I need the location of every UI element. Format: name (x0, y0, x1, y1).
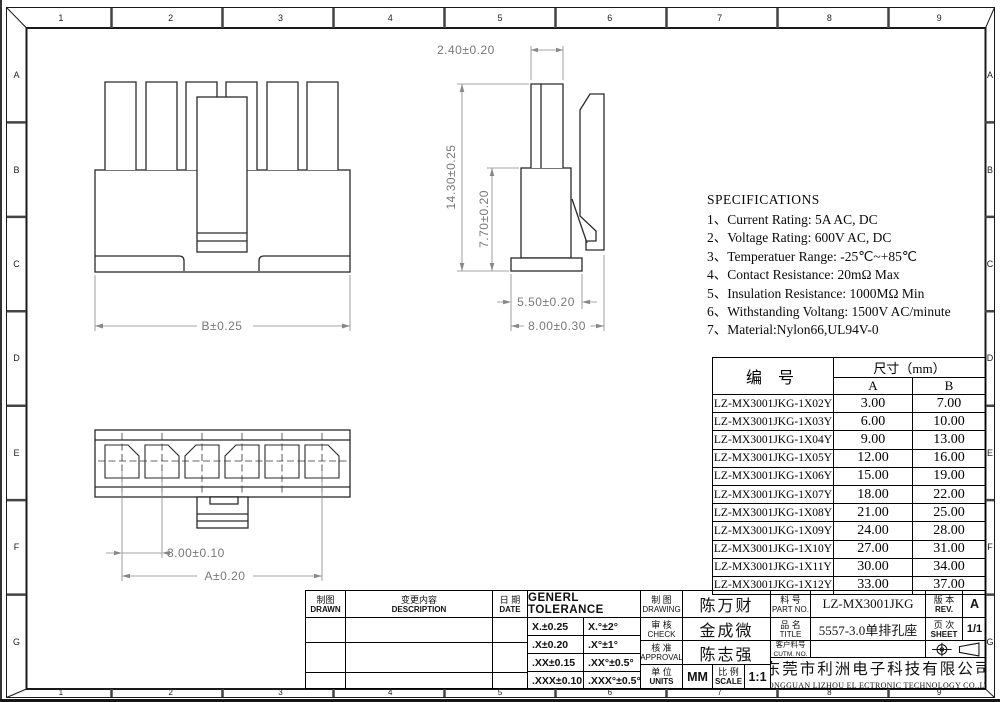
projection-symbol-cell (926, 641, 986, 658)
dim-side-body-height: 7.70±0.20 (477, 190, 491, 248)
title-label-cn: 品 名 (780, 620, 801, 630)
part-number: LZ-MX3001JKG-1X02Y (713, 395, 834, 413)
frame-column-label: 4 (335, 8, 445, 28)
parts-table: 编 号 尺寸（mm） A B LZ-MX3001JKG-1X02Y 3.00 7… (712, 357, 986, 595)
revision-row-cell (493, 673, 528, 689)
dim-b-value: 10.00 (913, 413, 986, 431)
dim-b-value: 34.00 (913, 558, 986, 576)
dim-b-value: 16.00 (913, 449, 986, 467)
parts-table-header-part: 编 号 (713, 358, 834, 395)
scale-label-cn: 比 例 (718, 667, 739, 677)
title-value-cell: 5557-3.0单排孔座 (811, 618, 926, 641)
sheet-label-cell: 页 次 SHEET (926, 618, 963, 641)
sheet-value: 1/1 (967, 623, 982, 635)
check-label-cn: 审 核 (651, 620, 672, 630)
customer-no-value-cell (811, 641, 926, 658)
dim-a-value: 24.00 (834, 522, 913, 540)
check-label-en: CHECK (647, 630, 675, 639)
rev-value: A (970, 597, 979, 611)
parts-table-row: LZ-MX3001JKG-1X05Y 12.00 16.00 (713, 449, 986, 467)
frame-column-label: 1 (6, 688, 116, 697)
specification-item: 1、Current Rating: 5A AC, DC (707, 211, 997, 229)
part-no-label-cn: 料 号 (780, 595, 801, 605)
scale-value: 1:1 (748, 670, 766, 684)
revision-row-cell (306, 673, 346, 689)
company-name-en: DONGGUAN LIZHOU EL ECTRONIC TECHNOLOGY C… (771, 681, 986, 689)
front-view-linework (95, 82, 350, 272)
specification-item: 5、Insulation Resistance: 1000MΩ Min (707, 285, 997, 303)
company-cell: 东莞市利洲电子科技有限公司 DONGGUAN LIZHOU EL ECTRONI… (771, 658, 986, 689)
dim-a-value: 6.00 (834, 413, 913, 431)
specification-item: 3、Temperatuer Range: -25℃~+85℃ (707, 248, 997, 266)
frame-column-label: 5 (445, 688, 555, 697)
scale-label-cell: 比 例 SCALE (713, 665, 745, 689)
check-label-cell: 审 核 CHECK (641, 618, 683, 641)
part-title-value: 5557-3.0单排孔座 (819, 620, 918, 639)
revision-row-cell (346, 673, 493, 689)
frame-row-label: G (985, 595, 995, 689)
third-angle-projection-icon (928, 642, 984, 657)
parts-table-header-size: 尺寸（mm） (834, 358, 986, 378)
dim-b-value: 22.00 (913, 485, 986, 503)
customer-no-label-cell: 客户料号 CUTM. NO. (771, 641, 811, 658)
part-number: LZ-MX3001JKG-1X06Y (713, 467, 834, 485)
specification-item: 2、Voltage Rating: 600V AC, DC (707, 229, 997, 247)
title-label-cell: 品 名 TITLE (771, 618, 811, 641)
part-no-value-cell: LZ-MX3001JKG (811, 591, 926, 618)
scale-label-en: SCALE (715, 677, 742, 686)
dim-b-value: 7.00 (913, 395, 986, 413)
part-no-label-cell: 料 号 PART NO. (771, 591, 811, 618)
frame-row-label: F (7, 500, 26, 594)
frame-column-label: 7 (665, 8, 775, 28)
parts-table-row: LZ-MX3001JKG-1X11Y 30.00 34.00 (713, 558, 986, 576)
frame-column-label: 6 (555, 688, 665, 697)
dim-b-value: 25.00 (913, 504, 986, 522)
check-name: 金成微 (699, 618, 753, 641)
description-label-en: DESCRIPTION (392, 605, 447, 614)
sheet-value-cell: 1/1 (963, 618, 986, 641)
sheet-label-cn: 页 次 (934, 620, 955, 630)
frame-column-label: 2 (116, 688, 226, 697)
parts-table-row: LZ-MX3001JKG-1X07Y 18.00 22.00 (713, 485, 986, 503)
specifications-title: SPECIFICATIONS (707, 192, 997, 208)
frame-column-labels-top: 123456789 (6, 8, 994, 28)
drawing-sheet: 123456789 123456789 ABCDEFG ABCDEFG B±0.… (0, 0, 1000, 702)
frame-column-label: 8 (774, 8, 884, 28)
part-number: LZ-MX3001JKG-1X04Y (713, 431, 834, 449)
customer-no-label-cn: 客户料号 (776, 641, 806, 650)
frame-column-label: 2 (116, 8, 226, 28)
customer-no-label-en: CUTM. NO. (774, 650, 808, 659)
part-number: LZ-MX3001JKG-1X10Y (713, 540, 834, 558)
approval-label-cn: 核 准 (651, 643, 672, 653)
rev-label-cn: 版 本 (934, 595, 955, 605)
frame-column-labels-bottom: 123456789 (6, 688, 994, 697)
date-header-cell: 日 期 DATE (493, 591, 528, 618)
date-label-cn: 日 期 (500, 595, 521, 605)
frame-row-label: A (985, 28, 995, 122)
check-name-cell: 金成微 (683, 618, 771, 641)
tolerance-frame-cell (528, 618, 641, 689)
dim-a-value: 12.00 (834, 449, 913, 467)
frame-row-label: B (7, 122, 26, 216)
revision-row-cell (493, 618, 528, 643)
dim-side-top-width: 2.40±0.20 (437, 43, 495, 57)
approval-name-cell: 陈志强 (683, 641, 771, 665)
dim-a-value: 3.00 (834, 395, 913, 413)
side-view-linework (511, 84, 604, 271)
scale-value-cell: 1:1 (745, 665, 771, 689)
dim-side-flange-width: 8.00±0.30 (528, 319, 586, 333)
specifications-block: SPECIFICATIONS 1、Current Rating: 5A AC, … (707, 192, 997, 340)
frame-column-label: 9 (884, 8, 994, 28)
drawn-label-cn: 制图 (316, 595, 334, 605)
approval-label-cell: 核 准 APPROVAL (641, 641, 683, 665)
drawing-label-en: DRAWING (642, 605, 680, 614)
parts-table-row: LZ-MX3001JKG-1X09Y 24.00 28.00 (713, 522, 986, 540)
description-header-cell: 变更内容 DESCRIPTION (346, 591, 493, 618)
parts-table-row: LZ-MX3001JKG-1X06Y 15.00 19.00 (713, 467, 986, 485)
part-number: LZ-MX3001JKG-1X07Y (713, 485, 834, 503)
rev-label-cell: 版 本 REV. (926, 591, 963, 618)
rev-value-cell: A (963, 591, 986, 618)
parts-table-row: LZ-MX3001JKG-1X04Y 9.00 13.00 (713, 431, 986, 449)
part-number: LZ-MX3001JKG-1X05Y (713, 449, 834, 467)
drawing-label-cell: 制 图 DRAWING (641, 591, 683, 618)
units-label-cell: 单 位 UNITS (641, 665, 683, 689)
drawing-name-cell: 陈万财 (683, 591, 771, 618)
drawn-header-cell: 制图 DRAWN (306, 591, 346, 618)
frame-row-label: G (7, 595, 26, 689)
frame-column-label: 5 (445, 8, 555, 28)
specification-item: 4、Contact Resistance: 20mΩ Max (707, 266, 997, 284)
dim-a-value: 21.00 (834, 504, 913, 522)
part-no-value: LZ-MX3001JKG (823, 596, 914, 612)
title-block: 制图 DRAWN 变更内容 DESCRIPTION 日 期 DATE GENER… (305, 590, 986, 689)
sheet-label-en: SHEET (931, 630, 958, 639)
parts-table-row: LZ-MX3001JKG-1X08Y 21.00 25.00 (713, 504, 986, 522)
dim-b-value: 19.00 (913, 467, 986, 485)
frame-row-label: A (7, 28, 26, 122)
dim-bottom-overall: A±0.20 (205, 569, 246, 583)
dim-a-value: 9.00 (834, 431, 913, 449)
date-label-en: DATE (499, 605, 520, 614)
part-number: LZ-MX3001JKG-1X03Y (713, 413, 834, 431)
units-label-cn: 单 位 (651, 667, 672, 677)
approval-label-en: APPROVAL (641, 653, 683, 662)
frame-column-label: 1 (6, 8, 116, 28)
dim-a-value: 30.00 (834, 558, 913, 576)
page-edge-left (0, 0, 2, 702)
drawing-label-cn: 制 图 (651, 595, 672, 605)
frame-row-label: E (985, 406, 995, 500)
parts-table-header-b: B (913, 378, 986, 395)
revision-row-cell (306, 643, 346, 673)
frame-column-label: 3 (226, 688, 336, 697)
dim-a-value: 18.00 (834, 485, 913, 503)
dim-b-value: 31.00 (913, 540, 986, 558)
frame-column-label: 6 (555, 8, 665, 28)
part-number: LZ-MX3001JKG-1X09Y (713, 522, 834, 540)
frame-row-labels-right: ABCDEFG (985, 28, 995, 689)
frame-column-label: 7 (665, 688, 775, 697)
dim-b-value: 28.00 (913, 522, 986, 540)
part-number: LZ-MX3001JKG-1X08Y (713, 504, 834, 522)
rev-label-en: REV. (935, 605, 953, 614)
frame-column-label: 8 (774, 688, 884, 697)
frame-column-label: 3 (226, 8, 336, 28)
tolerance-header-cell: GENERL TOLERANCE (528, 591, 641, 618)
frame-row-labels-left: ABCDEFG (7, 28, 26, 689)
description-label-cn: 变更内容 (401, 595, 437, 605)
parts-table-row: LZ-MX3001JKG-1X03Y 6.00 10.00 (713, 413, 986, 431)
bottom-view-linework (95, 430, 350, 528)
drawn-label-en: DRAWN (310, 605, 340, 614)
dim-b-value: 13.00 (913, 431, 986, 449)
approval-name: 陈志强 (699, 641, 753, 665)
part-no-label-en: PART NO. (772, 605, 809, 614)
dim-a-value: 15.00 (834, 467, 913, 485)
frame-row-label: F (985, 500, 995, 594)
parts-table-row: LZ-MX3001JKG-1X02Y 3.00 7.00 (713, 395, 986, 413)
frame-row-label: D (7, 311, 26, 405)
frame-row-label: C (7, 217, 26, 311)
title-label-en: TITLE (780, 630, 802, 639)
specifications-list: 1、Current Rating: 5A AC, DC2、Voltage Rat… (707, 211, 997, 340)
drawing-name: 陈万财 (699, 592, 753, 616)
revision-row-cell (346, 618, 493, 643)
revision-row-cell (493, 643, 528, 673)
revision-row-cell (346, 643, 493, 673)
part-number: LZ-MX3001JKG-1X11Y (713, 558, 834, 576)
specification-item: 6、Withstanding Voltang: 1500V AC/minute (707, 303, 997, 321)
dim-side-overall-height: 14.30±0.25 (444, 145, 458, 210)
frame-column-label: 9 (884, 688, 994, 697)
specification-item: 7、Material:Nylon66,UL94V-0 (707, 321, 997, 339)
units-value-cell: MM (683, 665, 713, 689)
company-name-cn: 东莞市利洲电子科技有限公司 (771, 658, 986, 679)
revision-row-cell (306, 618, 346, 643)
frame-column-label: 4 (335, 688, 445, 697)
units-value: MM (687, 670, 708, 684)
frame-row-label: E (7, 406, 26, 500)
dim-front-overall-width: B±0.25 (202, 319, 243, 333)
dim-side-body-width: 5.50±0.20 (517, 295, 575, 309)
dim-bottom-pitch: 3.00±0.10 (167, 546, 225, 560)
dim-a-value: 27.00 (834, 540, 913, 558)
units-label-en: UNITS (650, 677, 674, 686)
tolerance-title: GENERL TOLERANCE (528, 592, 640, 616)
parts-table-row: LZ-MX3001JKG-1X10Y 27.00 31.00 (713, 540, 986, 558)
parts-table-header-a: A (834, 378, 913, 395)
